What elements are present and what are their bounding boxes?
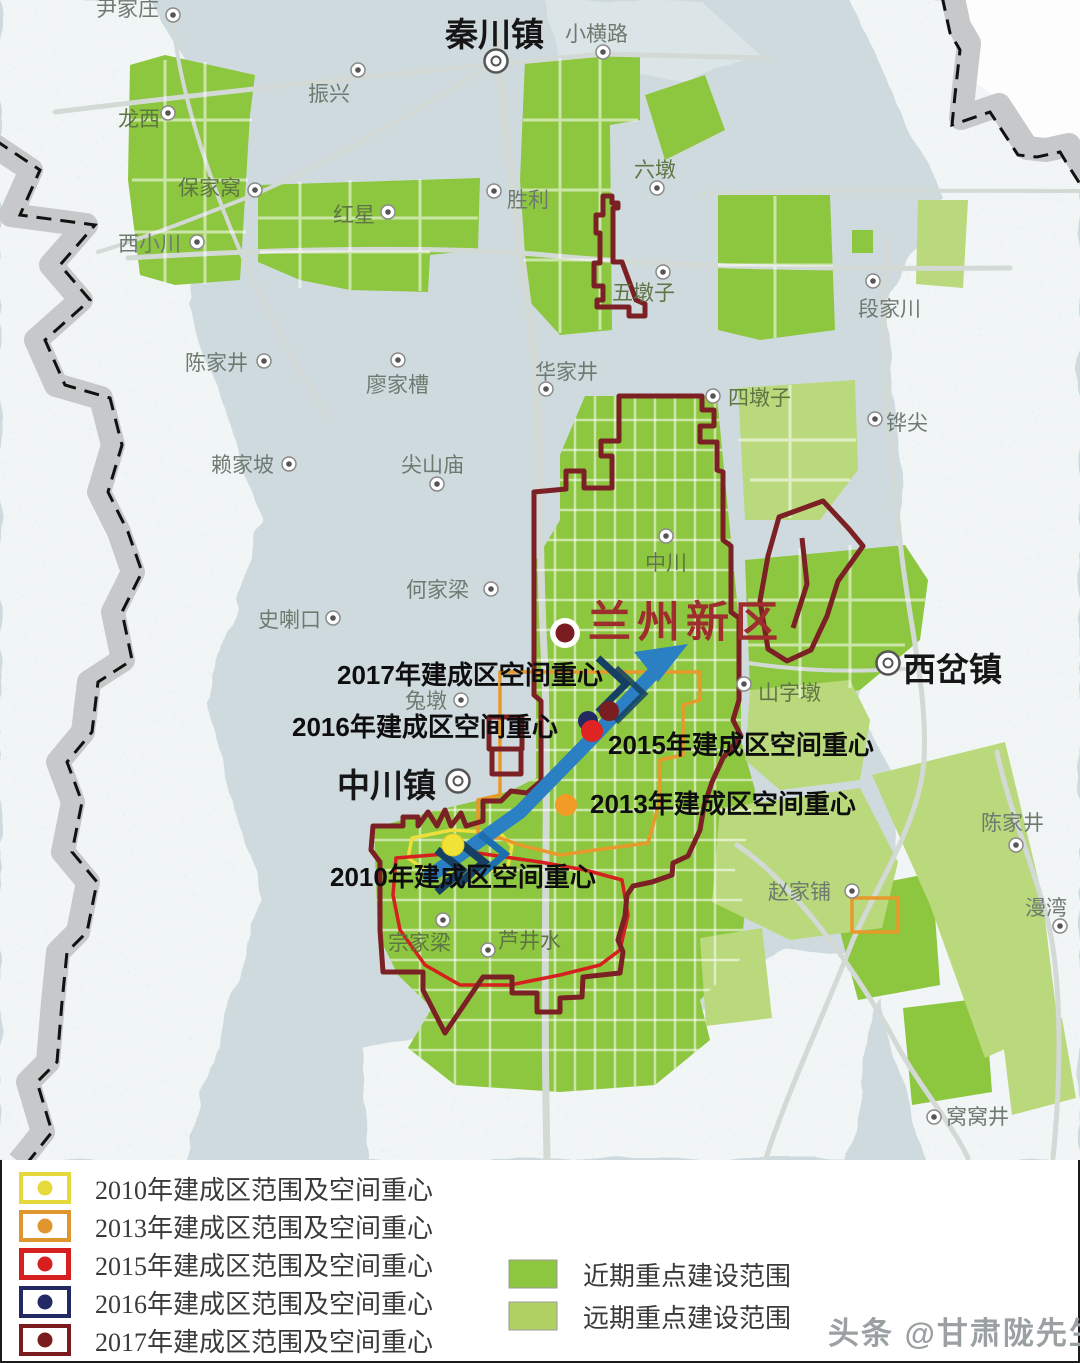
dot-huajiajing [539, 382, 553, 396]
label-wowojing: 窝窝井 [946, 1105, 1009, 1129]
dot-zhaojiapu [845, 884, 859, 898]
xicha-town-marker [877, 652, 900, 675]
legend-item-2013: 2013年建成区范围及空间重心 [19, 1210, 433, 1242]
dot-zhongchuan [659, 529, 673, 543]
dot-chenjiajing-n [257, 354, 271, 368]
legend-label-far-term: 远期重点建设范围 [583, 1298, 791, 1335]
dot-wowojing [927, 1110, 941, 1124]
label-qinchuanzhen: 秦川镇 [444, 16, 544, 53]
center-2010-dot [442, 834, 464, 856]
legend-swatch-near-term [507, 1258, 559, 1290]
label-huajian: 铧尖 [886, 411, 928, 435]
label-center-2015: 2015年建成区空间重心 [608, 730, 874, 760]
label-jianshanmiao: 尖山庙 [401, 453, 464, 477]
legend-swatch-2015 [19, 1248, 71, 1280]
legend-item-2010: 2010年建成区范围及空间重心 [19, 1172, 433, 1204]
label-chenjiajing-e: 陈家井 [981, 811, 1044, 835]
dot-manwan [1053, 919, 1067, 933]
label-xixiaochuan: 西小川 [118, 232, 181, 256]
dot-liudun [650, 181, 664, 195]
dot-xiaohenglu [596, 45, 610, 59]
center-2013-dot [555, 794, 577, 816]
label-zhenxing: 振兴 [308, 82, 350, 106]
label-center-2013: 2013年建成区空间重心 [590, 789, 856, 819]
label-center-2010: 2010年建成区空间重心 [330, 862, 596, 892]
dot-chenjiajing-e [1009, 838, 1023, 852]
legend-label-near-term: 近期重点建设范围 [583, 1256, 791, 1293]
legend: 2010年建成区范围及空间重心 2013年建成区范围及空间重心 2015年建成区… [0, 1160, 1080, 1363]
label-yinjiazhuang: 尹家庄 [96, 0, 159, 21]
label-center-2016: 2016年建成区空间重心 [292, 712, 558, 742]
label-baojiawo: 保家窝 [178, 176, 241, 200]
legend-item-2016: 2016年建成区范围及空间重心 [19, 1286, 433, 1318]
label-duanjiachuan: 段家川 [858, 297, 921, 321]
label-hejialiang: 何家梁 [406, 578, 469, 602]
watermark: 头条 @甘肃陇先生 [828, 1308, 1080, 1353]
dot-zongjialiang [436, 913, 450, 927]
label-xichazhen: 西岔镇 [903, 651, 1002, 688]
dot-xixiaochuan [190, 235, 204, 249]
legend-label-2015: 2015年建成区范围及空间重心 [95, 1246, 433, 1283]
dot-laijiapo [282, 457, 296, 471]
zhongchuan-town-marker [447, 770, 470, 793]
label-liudun: 六墩 [634, 158, 676, 182]
legend-swatch-2013 [19, 1210, 71, 1242]
lanzhou-new-area-map: 尹家庄 龙西 振兴 保家窝 红星 西小川 小横路 六墩 胜利 五墩子 段家川 陈… [0, 0, 1080, 1160]
dot-yinjiazhuang [166, 8, 180, 22]
label-zhaojiapu: 赵家铺 [768, 880, 831, 904]
label-zhongchuan: 中川 [645, 551, 687, 575]
dot-huajian [868, 412, 882, 426]
label-manwan: 漫湾 [1025, 896, 1067, 920]
dot-zhenxing [351, 63, 365, 77]
legend-item-2017: 2017年建成区范围及空间重心 [19, 1324, 433, 1356]
legend-swatch-2016 [19, 1286, 71, 1318]
legend-item-2015: 2015年建成区范围及空间重心 [19, 1248, 433, 1280]
dot-shanzidun [737, 677, 751, 691]
dot-longxi [161, 106, 175, 120]
legend-item-near-term: 近期重点建设范围 [507, 1258, 791, 1290]
label-zongjialiang: 宗家梁 [388, 931, 451, 955]
label-lujingshui: 芦井水 [498, 929, 561, 953]
dot-duanjiachuan [866, 274, 880, 288]
legend-item-far-term: 远期重点建设范围 [507, 1300, 791, 1332]
label-huajiajing: 华家井 [535, 360, 598, 384]
legend-label-2016: 2016年建成区范围及空间重心 [95, 1284, 433, 1321]
dot-liaojiacao [391, 353, 405, 367]
label-sidunzi: 四墩子 [728, 386, 791, 410]
label-chenjiajing-n: 陈家井 [185, 351, 248, 375]
label-hongxing: 红星 [333, 203, 375, 227]
legend-label-2017: 2017年建成区范围及空间重心 [95, 1322, 433, 1359]
label-shilakou: 史喇口 [258, 608, 321, 632]
label-wudunzi: 五墩子 [612, 281, 675, 305]
dot-baojiawo [248, 183, 262, 197]
label-longxi: 龙西 [118, 107, 160, 131]
legend-swatch-2010 [19, 1172, 71, 1204]
label-laijiapo: 赖家坡 [211, 453, 274, 477]
dot-shengli [487, 184, 501, 198]
legend-swatch-far-term [507, 1300, 559, 1332]
center-2015-dot [581, 720, 603, 742]
label-zhongchuanzhen: 中川镇 [337, 767, 436, 804]
dot-wudunzi [656, 265, 670, 279]
center-2017-dot [599, 701, 619, 721]
label-xiaohenglu: 小横路 [565, 22, 628, 46]
dot-hejialiang [484, 582, 498, 596]
label-shengli: 胜利 [507, 188, 549, 212]
label-tudun: 兔墩 [405, 689, 447, 713]
dot-jianshanmiao [430, 477, 444, 491]
dot-shilakou [326, 611, 340, 625]
dot-sidunzi [706, 389, 720, 403]
lanzhou-new-area-title: 兰州新区 [588, 599, 784, 647]
legend-swatch-2017 [19, 1324, 71, 1356]
label-center-2017: 2017年建成区空间重心 [337, 660, 603, 690]
lanzhou-xinqu-marker [550, 618, 580, 648]
legend-label-2013: 2013年建成区范围及空间重心 [95, 1208, 433, 1245]
legend-label-2010: 2010年建成区范围及空间重心 [95, 1170, 433, 1207]
map-page: 尹家庄 龙西 振兴 保家窝 红星 西小川 小横路 六墩 胜利 五墩子 段家川 陈… [0, 0, 1080, 1363]
dot-tudun [454, 693, 468, 707]
label-liaojiacao: 廖家槽 [366, 373, 429, 397]
dot-hongxing [381, 205, 395, 219]
dot-lujingshui [481, 943, 495, 957]
label-shanzidun: 山字墩 [758, 681, 821, 705]
